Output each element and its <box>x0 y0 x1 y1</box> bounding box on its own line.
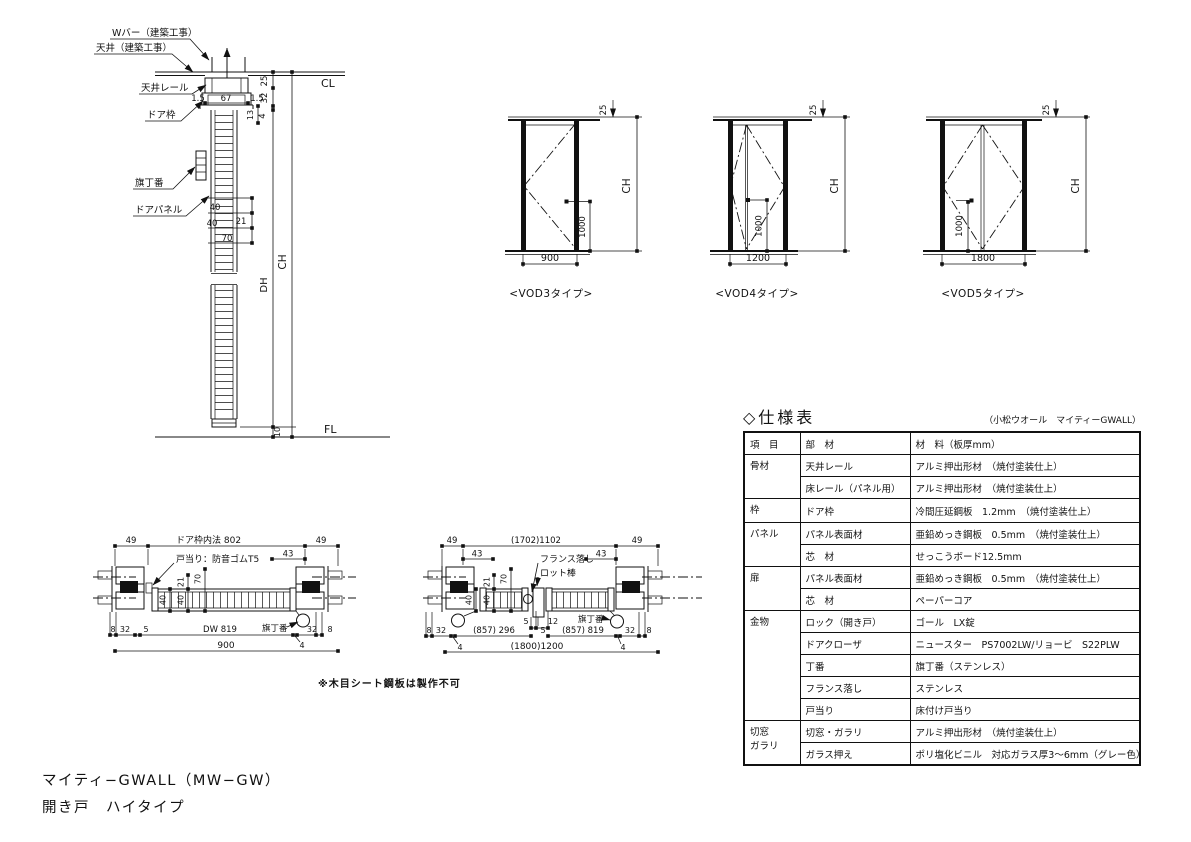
right-leaf-plan <box>546 588 614 611</box>
part-cell: ドアクローザ <box>800 633 910 655</box>
left-jamb <box>98 566 144 612</box>
dim-25: 25 <box>260 76 270 87</box>
dim-21: 21 <box>483 577 492 587</box>
w-bar-label: Wバー（建築工事） <box>112 27 197 39</box>
dim-49-left: 49 <box>126 536 137 546</box>
right-jamb <box>296 566 342 612</box>
part-cell: ロック（開き戸） <box>800 611 910 633</box>
table-row: パネル パネル表面材 亜鉛めっき鋼板 0.5mm （焼付塗装仕上） <box>744 523 1140 545</box>
part-cell: 戸当り <box>800 699 910 721</box>
plan-double-door: 49 (1702)1102 49 43 43 フランス落し ロット棒 21 70… <box>423 536 702 652</box>
door-handle-mark <box>565 200 569 204</box>
dim-ch: CH <box>277 254 289 269</box>
height-dim: CH <box>1070 178 1082 193</box>
hinge-knuckle <box>452 614 465 627</box>
material-cell: ニュースター PS7002LW/リョービ S22PLW <box>910 633 1140 655</box>
table-row: 骨材 天井レール アルミ押出形材 （焼付塗装仕上） <box>744 455 1140 477</box>
elevation-type-label: <VOD5タイプ> <box>941 288 1025 300</box>
material-cell: アルミ押出形材 （焼付塗装仕上） <box>910 721 1140 743</box>
material-cell: ポリ塩化ビニル 対応ガラス厚3〜6mm（グレー色） <box>910 743 1140 766</box>
col-header-material: 材 料（板厚mm） <box>910 432 1140 455</box>
material-cell: ペーパーコア <box>910 589 1140 611</box>
hinge-label: 旗丁番 <box>135 177 164 189</box>
group-cell-hardware: 金物 <box>744 611 800 721</box>
material-cell: 亜鉛めっき鋼板 0.5mm （焼付塗装仕上） <box>910 523 1140 545</box>
dim-8-left: 8 <box>110 625 115 634</box>
table-row: 芯 材 せっこうボード12.5mm <box>744 545 1140 567</box>
table-row: 芯 材 ペーパーコア <box>744 589 1140 611</box>
table-row: 切窓 ガラリ 切窓・ガラリ アルミ押出形材 （焼付塗装仕上） <box>744 721 1140 743</box>
dim-rail-width: 67 <box>221 94 232 104</box>
material-cell: 冷間圧延鋼板 1.2mm （焼付塗装仕上） <box>910 499 1140 523</box>
dim-40a: 40 <box>159 595 168 605</box>
dim-40a: 40 <box>465 595 474 605</box>
top-offset-dim: 25 <box>809 105 819 116</box>
dim-40b: 40 <box>207 219 218 229</box>
group-cell-panel: パネル <box>744 523 800 567</box>
table-row: ドアクローザ ニュースター PS7002LW/リョービ S22PLW <box>744 633 1140 655</box>
group-label-line1: 切窓 <box>750 727 769 738</box>
table-row: 扉 パネル表面材 亜鉛めっき鋼板 0.5mm （焼付塗装仕上） <box>744 567 1140 589</box>
hinge-label: 旗丁番 <box>578 614 604 625</box>
top-offset-dim: 25 <box>1042 105 1052 116</box>
material-cell: ステンレス <box>910 677 1140 699</box>
table-row: 金物 ロック（開き戸） ゴール LX錠 <box>744 611 1140 633</box>
dim-49-right: 49 <box>632 536 643 546</box>
cl-label: CL <box>321 77 336 90</box>
dim-dw: DW 819 <box>203 625 237 635</box>
dim-leaf2: (857) 819 <box>562 626 604 636</box>
dim-13: 13 <box>246 110 255 120</box>
group-cell-window-louver: 切窓 ガラリ <box>744 721 800 766</box>
fl-label: FL <box>324 423 337 436</box>
dim-4: 4 <box>258 113 268 118</box>
drawing-title-block: マイティ−GWALL（MW−GW） 開き戸 ハイタイプ <box>42 768 281 822</box>
part-cell: ガラス押え <box>800 743 910 766</box>
dim-49-right: 49 <box>316 536 327 546</box>
dim-8-right: 8 <box>327 625 332 634</box>
spec-table-subtitle: （小松ウオール マイティーGWALL） <box>984 413 1141 428</box>
dim-40b: 40 <box>177 595 186 605</box>
table-row: フランス落し ステンレス <box>744 677 1140 699</box>
part-cell: 切窓・ガラリ <box>800 721 910 743</box>
dim-8-left: 8 <box>426 626 431 635</box>
dim-4: 4 <box>299 641 304 650</box>
width-dim: 1800 <box>971 253 995 264</box>
dim-49-left: 49 <box>447 536 458 546</box>
dim-8-right: 8 <box>646 626 651 635</box>
table-row: 丁番 旗丁番（ステンレス） <box>744 655 1140 677</box>
product-subtitle: 開き戸 ハイタイプ <box>42 795 281 822</box>
dim-40a: 40 <box>210 203 221 213</box>
part-cell: 床レール（パネル用） <box>800 477 910 499</box>
material-cell: 床付け戸当り <box>910 699 1140 721</box>
callout-labels: Wバー（建築工事） 天井（建築工事） 天井レール ドア枠 旗丁番 ドアパネル <box>94 27 209 216</box>
height-dim: CH <box>829 178 841 193</box>
vertical-section-drawing: 1.5 67 1.5 25 32 4 13 DH 10 CH 40 40 21 <box>40 18 390 463</box>
part-cell: 芯 材 <box>800 545 910 567</box>
col-header-item: 項 目 <box>744 432 800 455</box>
frame-inner-label: ドア枠内法 802 <box>176 534 241 546</box>
plan-single-door: 49 ドア枠内法 802 49 43 戸当り：防音ゴムT5 21 70 40 4… <box>93 534 356 651</box>
dim-43-left: 43 <box>472 550 483 560</box>
ceiling-label: 天井（建築工事） <box>96 42 172 54</box>
hinge-knuckle <box>611 615 624 628</box>
french-bolt-label: フランス落し <box>540 553 594 565</box>
part-cell: フランス落し <box>800 677 910 699</box>
rod-label: ロット棒 <box>540 567 576 579</box>
part-cell: パネル表面材 <box>800 567 910 589</box>
dim-12: 12 <box>548 617 558 626</box>
product-title: マイティ−GWALL（MW−GW） <box>42 768 281 795</box>
material-cell: ゴール LX錠 <box>910 611 1140 633</box>
right-jamb <box>616 566 662 612</box>
table-row: 床レール（パネル用） アルミ押出形材 （焼付塗装仕上） <box>744 477 1140 499</box>
ceiling-rail-label: 天井レール <box>141 82 189 94</box>
dim-32: 32 <box>260 93 270 104</box>
dim-32-left: 32 <box>436 626 446 635</box>
door-stop <box>146 583 152 593</box>
door-stop-label: 戸当り：防音ゴムT5 <box>176 553 259 565</box>
door-panel-section <box>196 110 239 427</box>
group-label-line2: ガラリ <box>750 741 779 752</box>
ceiling-structure <box>155 48 345 78</box>
elevation-vod3: 1000 900 CH 25 <VOD3タイプ> <box>505 100 642 300</box>
part-cell: パネル表面材 <box>800 523 910 545</box>
spec-table-header: ◇仕様表 （小松ウオール マイティーGWALL） <box>743 404 1141 428</box>
table-row: ガラス押え ポリ塩化ビニル 対応ガラス厚3〜6mm（グレー色） <box>744 743 1140 766</box>
height-dim: CH <box>621 178 633 193</box>
material-cell: 亜鉛めっき鋼板 0.5mm （焼付塗装仕上） <box>910 567 1140 589</box>
dim-43-right: 43 <box>596 550 607 560</box>
col-header-part: 部 材 <box>800 432 910 455</box>
dim-70: 70 <box>222 234 233 244</box>
table-row: 戸当り 床付け戸当り <box>744 699 1140 721</box>
dim-70: 70 <box>500 574 509 584</box>
handle-height-dim: 1000 <box>755 215 765 237</box>
dim-floor-gap: 10 <box>273 427 282 437</box>
dim-total: (1800)1200 <box>511 642 564 652</box>
fabrication-note: ※木目シート鋼板は製作不可 <box>318 675 461 690</box>
table-row: 枠 ドア枠 冷間圧延鋼板 1.2mm （焼付塗装仕上） <box>744 499 1140 523</box>
dim-21: 21 <box>236 217 247 227</box>
part-cell: ドア枠 <box>800 499 910 523</box>
spec-table-block: ◇仕様表 （小松ウオール マイティーGWALL） 項 目 部 材 材 料（板厚m… <box>743 404 1141 766</box>
width-dim: 900 <box>541 253 559 264</box>
spec-table: 項 目 部 材 材 料（板厚mm） 骨材 天井レール アルミ押出形材 （焼付塗装… <box>743 431 1141 766</box>
door-frame-label: ドア枠 <box>147 109 176 121</box>
door-panel-plan <box>152 588 296 611</box>
dim-5a: 5 <box>523 617 528 626</box>
material-cell: アルミ押出形材 （焼付塗装仕上） <box>910 477 1140 499</box>
width-dim: 1200 <box>746 253 770 264</box>
material-cell: 旗丁番（ステンレス） <box>910 655 1140 677</box>
elevation-type-label: <VOD4タイプ> <box>715 288 799 300</box>
material-cell: アルミ押出形材 （焼付塗装仕上） <box>910 455 1140 477</box>
group-cell-frame: 枠 <box>744 499 800 523</box>
dim-32-right: 32 <box>307 625 317 634</box>
dim-40b: 40 <box>483 595 492 605</box>
dim-4-right: 4 <box>620 643 625 652</box>
dim-rail-left: 1.5 <box>191 94 205 104</box>
dim-32-right: 32 <box>625 626 635 635</box>
part-cell: 芯 材 <box>800 589 910 611</box>
dim-5: 5 <box>143 625 148 634</box>
dim-70: 70 <box>194 574 203 584</box>
elevation-type-label: <VOD3タイプ> <box>509 288 593 300</box>
spec-table-title: ◇仕様表 <box>743 404 815 428</box>
handle-height-dim: 1000 <box>955 215 965 237</box>
top-offset-dim: 25 <box>599 105 609 116</box>
dim-43: 43 <box>283 550 294 560</box>
dim-32-left: 32 <box>120 625 130 634</box>
door-panel-label: ドアパネル <box>135 205 183 216</box>
group-cell-frame-members: 骨材 <box>744 455 800 499</box>
door-elevations-drawing: 1000 900 CH 25 <VOD3タイプ> 1000 1200 <box>500 100 1110 310</box>
dim-21: 21 <box>177 577 186 587</box>
group-cell-door: 扉 <box>744 567 800 611</box>
dimensions: 1.5 67 1.5 25 32 4 13 DH 10 CH 40 40 21 <box>191 72 337 437</box>
door-handle-mark <box>970 199 974 203</box>
drawing-sheet: 1.5 67 1.5 25 32 4 13 DH 10 CH 40 40 21 <box>0 0 1191 842</box>
dim-5b: 5 <box>540 626 545 635</box>
part-cell: 丁番 <box>800 655 910 677</box>
table-row: 項 目 部 材 材 料（板厚mm） <box>744 432 1140 455</box>
handle-height-dim: 1000 <box>578 216 588 238</box>
elevation-vod5: 1000 1800 CH 25 <VOD5タイプ> <box>923 100 1090 300</box>
part-cell: 天井レール <box>800 455 910 477</box>
dim-total: 900 <box>217 641 234 651</box>
dim-leaf1: (857) 296 <box>473 626 515 636</box>
material-cell: せっこうボード12.5mm <box>910 545 1140 567</box>
dim-inner: (1702)1102 <box>511 536 561 546</box>
hinge-label: 旗丁番 <box>262 623 288 634</box>
door-handle-mark <box>746 198 750 202</box>
dim-4-left: 4 <box>457 643 462 652</box>
elevation-vod4: 1000 1200 CH 25 <VOD4タイプ> <box>710 100 850 300</box>
dim-dh: DH <box>259 277 270 292</box>
